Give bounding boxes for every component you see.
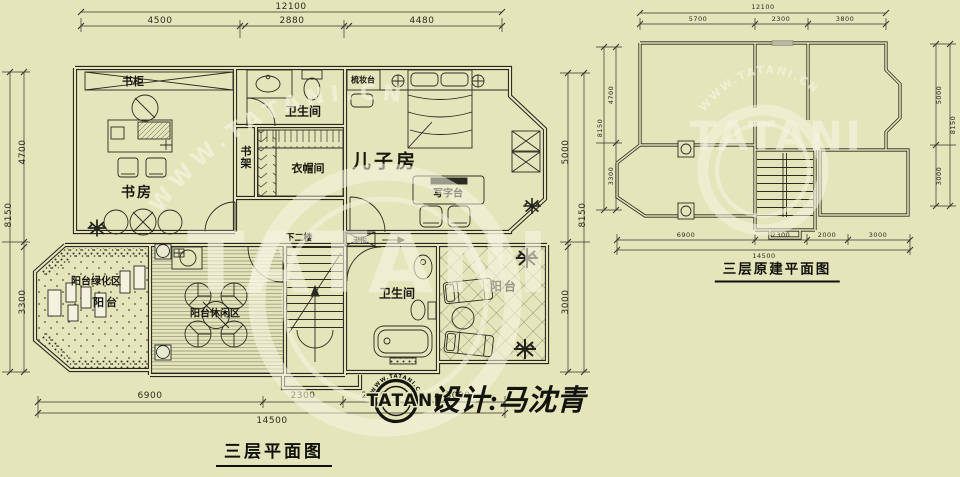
right-plan-title: 三层原建平面图: [715, 258, 840, 283]
blueprint-canvas: 12100 4500 2880 4480 8150 4700 3300 5000…: [0, 0, 960, 477]
designer-signature: 设计:马沈青: [431, 377, 586, 419]
left-plan-title: 三层平面图: [216, 437, 332, 467]
title-layer: 三层平面图 三层原建平面图 设计:马沈青: [0, 0, 960, 477]
